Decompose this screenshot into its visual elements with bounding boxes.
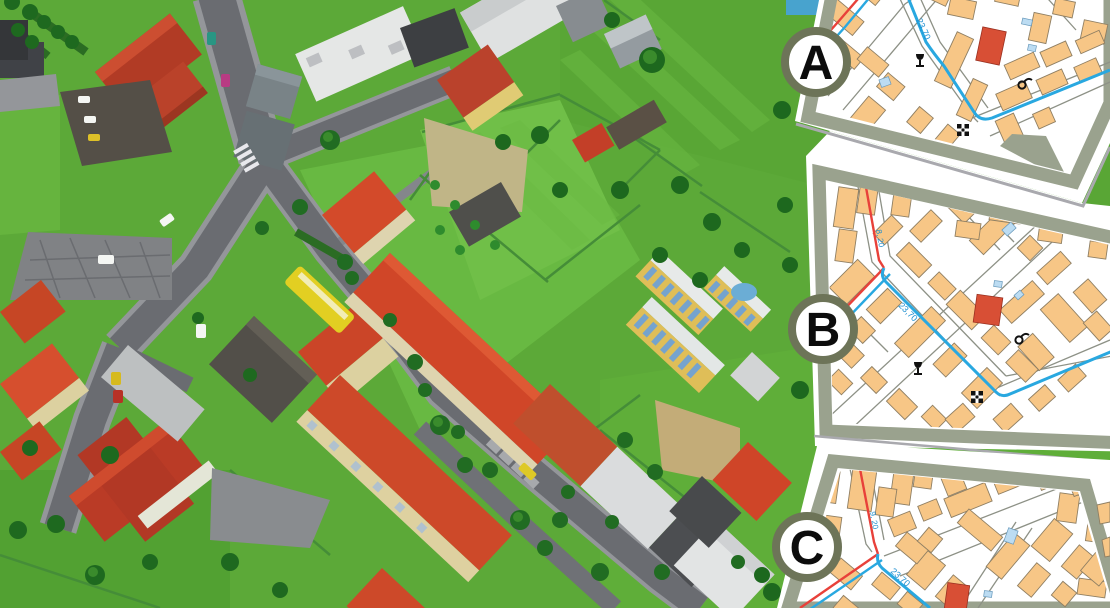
svg-text:B: B [806,304,841,357]
svg-text:A: A [799,37,834,90]
svg-text:C: C [790,522,825,575]
